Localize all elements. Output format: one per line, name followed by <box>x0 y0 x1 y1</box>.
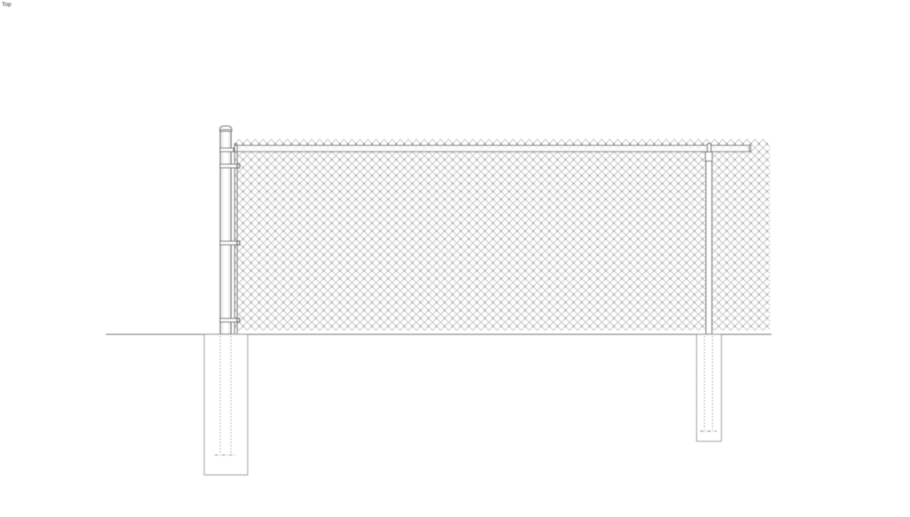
svg-text:Top: Top <box>2 2 12 8</box>
